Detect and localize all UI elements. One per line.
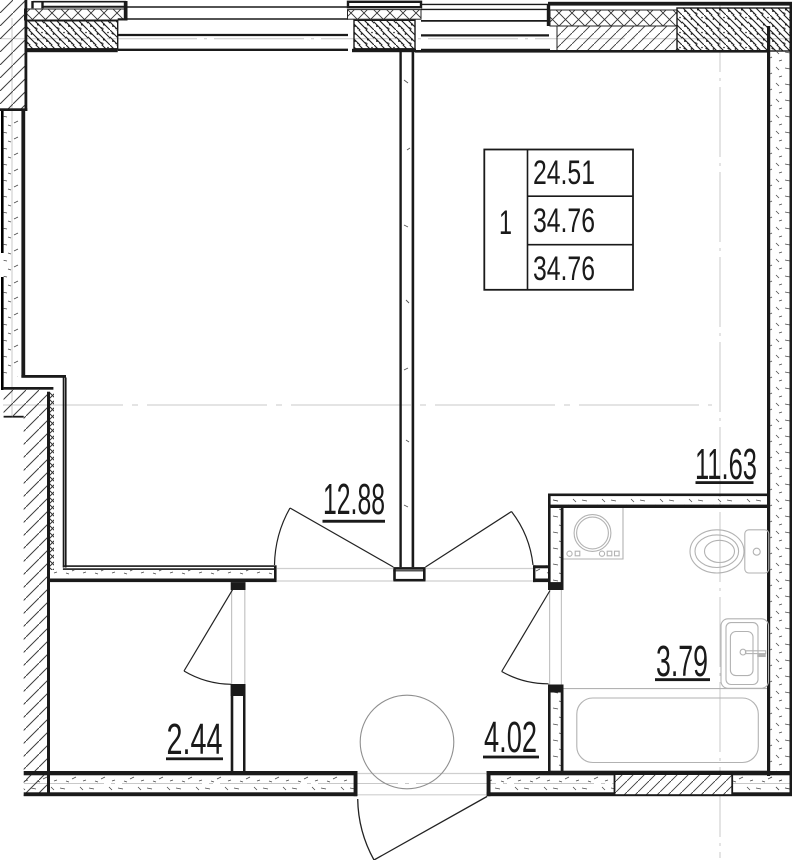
svg-text:4.02: 4.02: [484, 713, 537, 762]
svg-text:34.76: 34.76: [533, 250, 595, 288]
svg-text:24.51: 24.51: [533, 154, 595, 192]
svg-text:1: 1: [499, 204, 512, 242]
svg-text:12.88: 12.88: [323, 475, 385, 524]
svg-text:34.76: 34.76: [533, 202, 595, 240]
svg-text:2.44: 2.44: [167, 715, 223, 764]
